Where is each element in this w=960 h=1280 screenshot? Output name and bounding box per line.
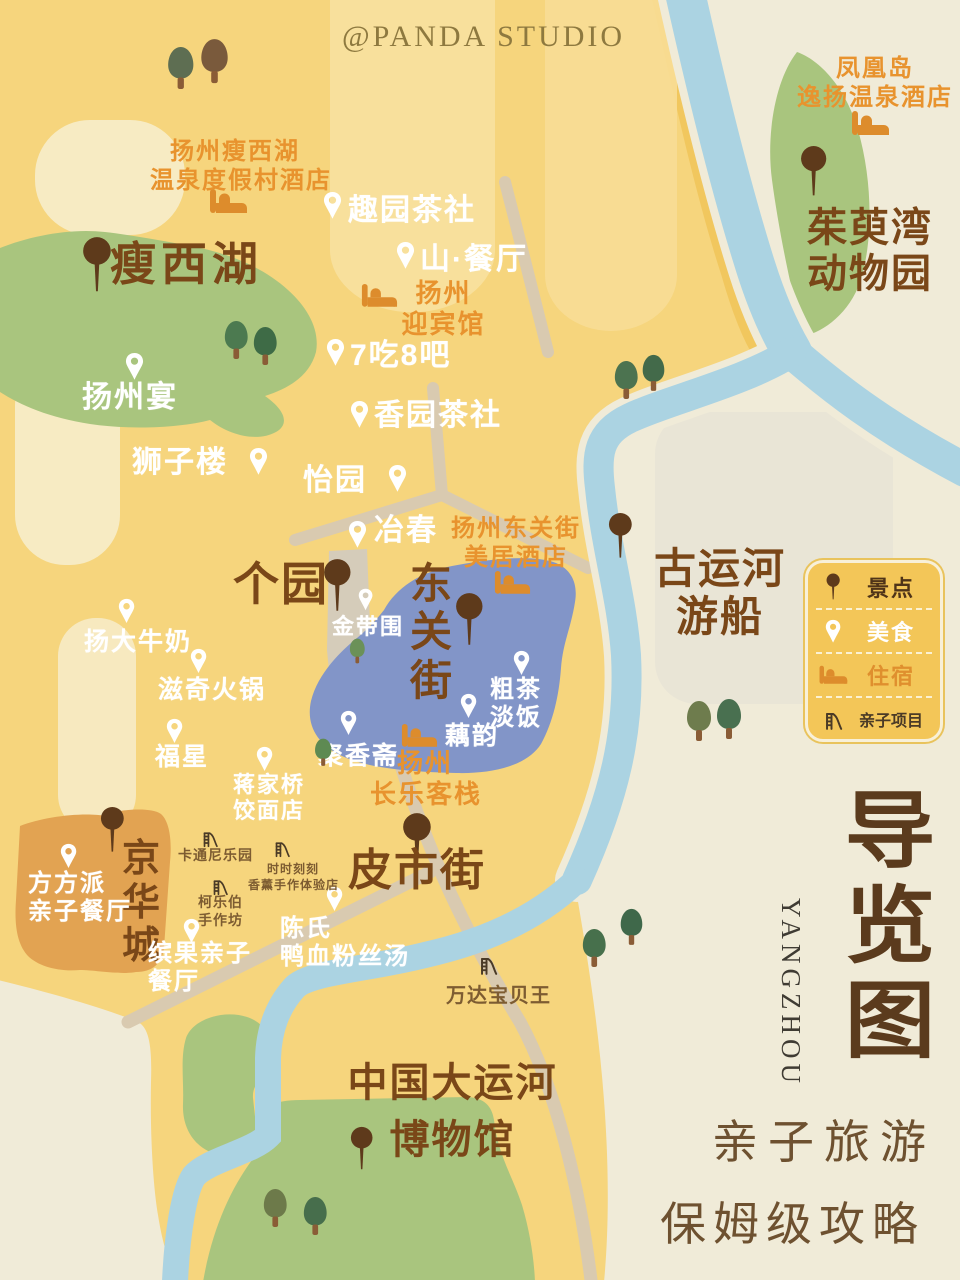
fenghuangdao-hotel-label: 凤凰岛逸扬温泉酒店	[790, 55, 960, 113]
poi-label-line: 扬州东关街	[446, 515, 586, 544]
legend-label: 美食	[850, 615, 932, 647]
fangfangpai-label: 方方派亲子餐厅	[28, 870, 132, 927]
hotel-bed-icon	[816, 665, 850, 685]
7chi8ba-label: 7吃8吧	[350, 338, 451, 373]
poi-label-line: 温泉度假村酒店	[150, 167, 320, 196]
poi-label-line: 柯乐伯	[198, 893, 243, 911]
shouxihu-label: 瘦西湖	[110, 238, 263, 291]
fuxing-label: 福星	[155, 743, 209, 773]
shan-restaurant-food-pin-icon	[396, 241, 415, 270]
poi-label-line: 蒋家桥	[233, 772, 305, 798]
yangda-milk-label: 扬大牛奶	[84, 628, 192, 658]
ziqi-hotpot-label: 滋奇火锅	[158, 676, 266, 706]
legend-row-food: 美食	[816, 610, 932, 654]
pishi-street-label: 皮市街	[348, 846, 486, 897]
poi-label-line: 香园茶社	[374, 398, 502, 433]
meiju-hotel-hotel-bed-icon	[493, 570, 531, 595]
tree-icon	[165, 46, 197, 90]
poi-label-line: 扬州	[370, 748, 480, 779]
quyuan-teahouse-label: 趣园茶社	[348, 193, 476, 228]
geyuan-label: 个园	[233, 558, 329, 611]
poi-label-line: 茱萸湾	[790, 205, 950, 251]
poi-label-line: 亲子餐厅	[28, 898, 132, 926]
guyunhe-cruise-attraction-pin-icon	[608, 512, 633, 560]
tree-icon	[348, 638, 367, 664]
tree-icon	[301, 1196, 330, 1236]
poi-label-line: 卡通尼乐园	[178, 846, 253, 864]
poi-label-line: 中国大运河	[325, 1055, 580, 1112]
yingbinguan-hotel-hotel-bed-icon	[360, 283, 398, 308]
poi-label-line: 扬大牛奶	[84, 628, 192, 658]
poi-label-line: 滋奇火锅	[158, 676, 266, 706]
title-char: 览	[834, 879, 946, 974]
yechun-label: 冶春	[374, 513, 438, 548]
dongguan-street-attraction-pin-icon	[455, 592, 484, 647]
katongni-park-label: 卡通尼乐园	[178, 846, 253, 864]
poi-label-line: 美居酒店	[446, 544, 586, 573]
poi-label-line: 皮市街	[348, 846, 486, 897]
changle-inn-hotel-bed-icon	[400, 723, 438, 748]
poi-label-line: 福星	[155, 743, 209, 773]
ouyun-food-pin-icon	[460, 693, 477, 719]
legend-label: 住宿	[850, 659, 932, 691]
poi-label-line: 冶春	[374, 513, 438, 548]
poi-label-line: 长乐客栈	[370, 779, 480, 810]
binguo-restaurant-label: 缤果亲子餐厅	[148, 940, 252, 997]
poi-label-line: 粗茶	[490, 676, 542, 704]
poi-label-line: 怡园	[303, 463, 367, 498]
yiyuan-food-pin-icon	[388, 464, 407, 493]
tree-icon	[251, 326, 280, 366]
tree-icon	[222, 320, 251, 360]
yangda-milk-food-pin-icon	[118, 598, 135, 624]
tagline-family-travel: 亲子旅游	[712, 1106, 936, 1172]
poi-label-line: 扬州瘦西湖	[150, 138, 320, 167]
zhuyuwan-zoo-label: 茱萸湾动物园	[790, 205, 950, 297]
poi-label-line: 7吃8吧	[350, 338, 451, 373]
tree-icon	[640, 354, 667, 392]
shan-restaurant-label: 山·餐厅	[420, 242, 528, 277]
xiangyuan-teahouse-food-pin-icon	[350, 400, 369, 429]
shizilou-food-pin-icon	[249, 447, 268, 476]
zhuyuwan-zoo-attraction-pin-icon	[800, 145, 827, 198]
map-subtitle-en: YANGZHOU	[775, 898, 806, 1098]
jiangjiaqiao-noodles-food-pin-icon	[256, 746, 273, 772]
legend-box: 景点 美食 住宿 亲子项目	[805, 560, 943, 742]
wanda-kids-king-kids-slide-icon	[478, 953, 498, 975]
poi-label-line: 饺面店	[233, 798, 305, 824]
tree-icon	[198, 38, 231, 84]
poi-label-line: 迎宾馆	[396, 309, 491, 340]
7chi8ba-food-pin-icon	[326, 338, 345, 367]
poi-label-line: 动物园	[790, 251, 950, 297]
ziqi-hotpot-food-pin-icon	[190, 648, 207, 674]
cucha-danfan-food-pin-icon	[513, 650, 530, 676]
meiju-hotel-label: 扬州东关街美居酒店	[446, 515, 586, 573]
dongguan-street-label: 东关街	[410, 560, 454, 705]
yingbinguan-hotel-label: 扬州迎宾馆	[396, 278, 491, 340]
tree-icon	[261, 1188, 290, 1228]
jindaiwei-food-pin-icon	[358, 588, 373, 611]
fangfangpai-food-pin-icon	[60, 843, 77, 869]
fuxing-food-pin-icon	[166, 718, 183, 744]
canal-museum-label: 中国大运河博物馆	[325, 1055, 580, 1169]
poi-label-line: 扬州宴	[82, 380, 178, 415]
poi-label-line: 餐厅	[148, 968, 252, 996]
guyunhe-cruise-label: 古运河游船	[645, 545, 795, 642]
poi-label-line: 陈氏	[280, 915, 410, 943]
yiyuan-label: 怡园	[303, 463, 367, 498]
shishikeke-workshop-label: 时时刻刻香薰手作体验店	[248, 862, 338, 893]
tree-icon	[612, 360, 641, 400]
kids-slide-icon	[816, 708, 850, 730]
poi-label-line: 街	[410, 657, 454, 705]
legend-label: 景点	[850, 571, 932, 603]
katongni-park-kids-slide-icon	[201, 828, 219, 848]
tree-icon	[684, 700, 714, 742]
shouxihu-resort-hotel-label: 扬州瘦西湖温泉度假村酒店	[150, 138, 320, 196]
poi-label-line: 趣园茶社	[348, 193, 476, 228]
poi-label-line: 游船	[645, 593, 795, 641]
jindaiwei-label: 金带围	[332, 614, 404, 640]
yechun-food-pin-icon	[348, 520, 367, 549]
poi-label-line: 缤果亲子	[148, 940, 252, 968]
legend-row-hotel: 住宿	[816, 654, 932, 698]
poi-label-line: 山·餐厅	[420, 242, 528, 277]
tree-icon	[313, 738, 333, 767]
title-char: 图	[834, 974, 946, 1069]
studio-watermark: @PANDA STUDIO	[342, 20, 625, 54]
poi-label-line: 香薰手作体验店	[248, 878, 338, 894]
shizilou-label: 狮子楼	[132, 445, 228, 480]
poi-label-line: 鸭血粉丝汤	[280, 943, 410, 971]
shouxihu-attraction-pin-icon	[82, 236, 112, 294]
juxiangzhai-food-pin-icon	[340, 710, 357, 736]
xiangyuan-teahouse-label: 香园茶社	[374, 398, 502, 433]
changle-inn-label: 扬州长乐客栈	[370, 748, 480, 810]
poi-label-line: 逸扬温泉酒店	[790, 84, 960, 113]
yangzhou-yan-label: 扬州宴	[82, 380, 178, 415]
jiangjiaqiao-noodles-label: 蒋家桥饺面店	[233, 772, 305, 824]
attraction-pin-icon	[816, 573, 850, 601]
poi-label-line: 狮子楼	[132, 445, 228, 480]
tagline-guide-level: 保姆级攻略	[660, 1188, 925, 1254]
poi-label-line: 手作坊	[198, 911, 243, 929]
tree-icon	[618, 908, 645, 946]
poi-label-line: 金带围	[332, 614, 404, 640]
poi-label-line: 关	[410, 608, 454, 656]
legend-label: 亲子项目	[850, 707, 932, 731]
poi-label-line: 个园	[233, 558, 329, 611]
yangzhou-guide-map: 瘦西湖个园东关街皮市街京华城茱萸湾动物园古运河游船中国大运河博物馆趣园茶社山·餐…	[0, 0, 960, 1280]
poi-label-line: 方方派	[28, 870, 132, 898]
tree-icon	[580, 928, 609, 968]
yangzhou-yan-food-pin-icon	[125, 352, 144, 381]
poi-label-line: 时时刻刻	[248, 862, 338, 878]
shishikeke-workshop-kids-slide-icon	[273, 838, 291, 858]
legend-row-kids: 亲子项目	[816, 698, 932, 740]
wanda-kids-king-label: 万达宝贝王	[446, 983, 551, 1009]
quyuan-teahouse-food-pin-icon	[323, 191, 342, 220]
poi-label-line: 万达宝贝王	[446, 983, 551, 1009]
jinghuacheng-attraction-pin-icon	[100, 806, 125, 854]
kelebo-workshop-label: 柯乐伯手作坊	[198, 893, 243, 929]
poi-label-line: 博物馆	[325, 1112, 580, 1169]
chenshi-duck-soup-label: 陈氏鸭血粉丝汤	[280, 915, 410, 972]
title-char: 导	[834, 784, 946, 879]
legend-row-attraction: 景点	[816, 566, 932, 610]
map-title: 导 览 图	[838, 784, 942, 1069]
poi-label-line: 扬州	[396, 278, 491, 309]
food-pin-icon	[816, 619, 850, 644]
fenghuangdao-hotel-hotel-bed-icon	[850, 110, 890, 136]
poi-label-line: 瘦西湖	[110, 238, 263, 291]
poi-label-line: 凤凰岛	[790, 55, 960, 84]
poi-label-line: 古运河	[645, 545, 795, 593]
tree-icon	[714, 698, 744, 740]
